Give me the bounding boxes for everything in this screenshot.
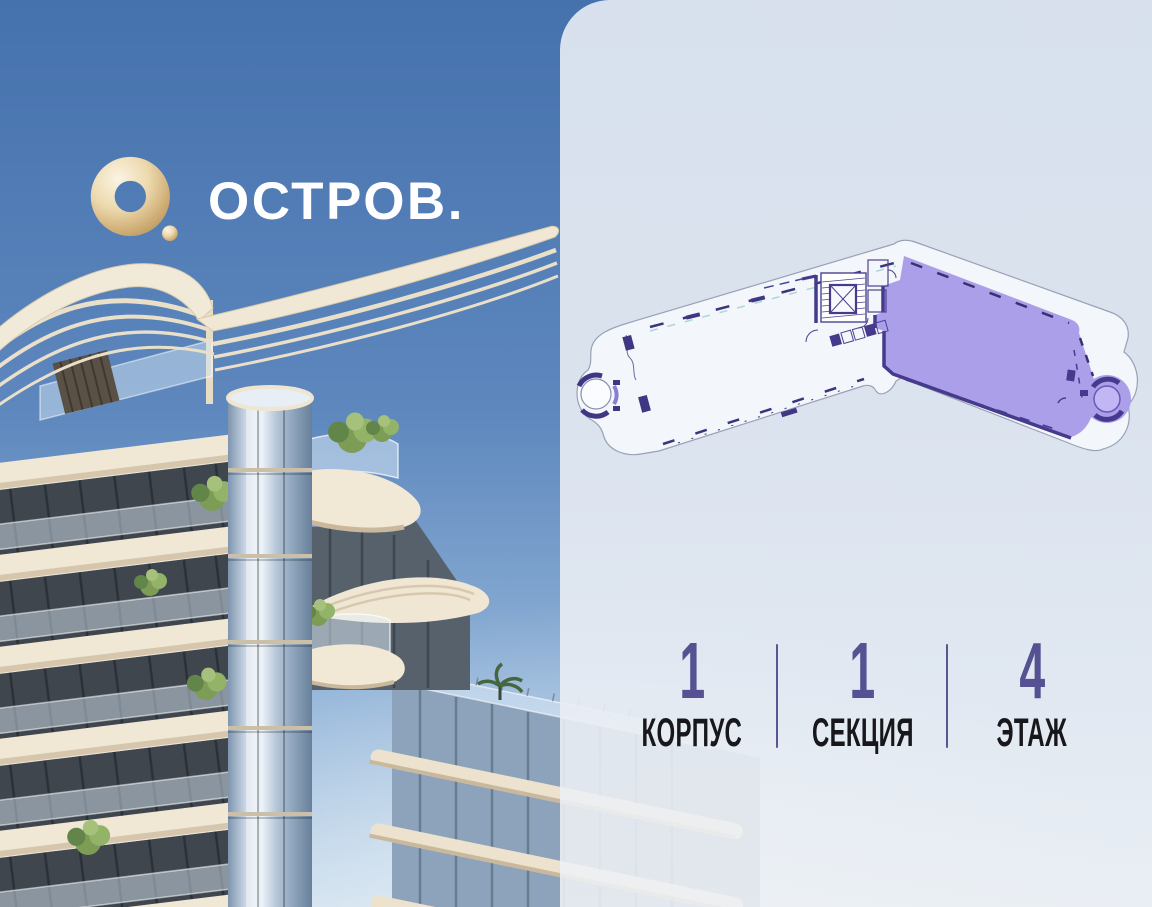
selection-summary: 1 КОРПУС 1 СЕКЦИЯ 4 ЭТАЖ: [560, 640, 1152, 751]
stat-floor-label: ЭТАЖ: [948, 715, 1116, 751]
stat-building-value: 1: [608, 640, 776, 702]
stat-building: 1 КОРПУС: [608, 640, 776, 751]
stat-section-label: СЕКЦИЯ: [778, 715, 946, 751]
stat-section-value: 1: [778, 640, 946, 702]
stat-section: 1 СЕКЦИЯ: [778, 640, 946, 751]
stat-building-label: КОРПУС: [608, 715, 776, 751]
page: ОСТРОВ.: [0, 0, 1152, 907]
stat-floor: 4 ЭТАЖ: [948, 640, 1116, 751]
stat-floor-value: 4: [948, 640, 1116, 702]
glass-elevator-cylinder: [228, 387, 312, 907]
floorplan: [566, 230, 1146, 492]
brand-wordmark: ОСТРОВ.: [208, 156, 465, 248]
info-panel: 1 КОРПУС 1 СЕКЦИЯ 4 ЭТАЖ: [560, 0, 1152, 907]
brand-logo: ОСТРОВ.: [88, 156, 465, 248]
brand-ring-icon: [88, 156, 180, 248]
